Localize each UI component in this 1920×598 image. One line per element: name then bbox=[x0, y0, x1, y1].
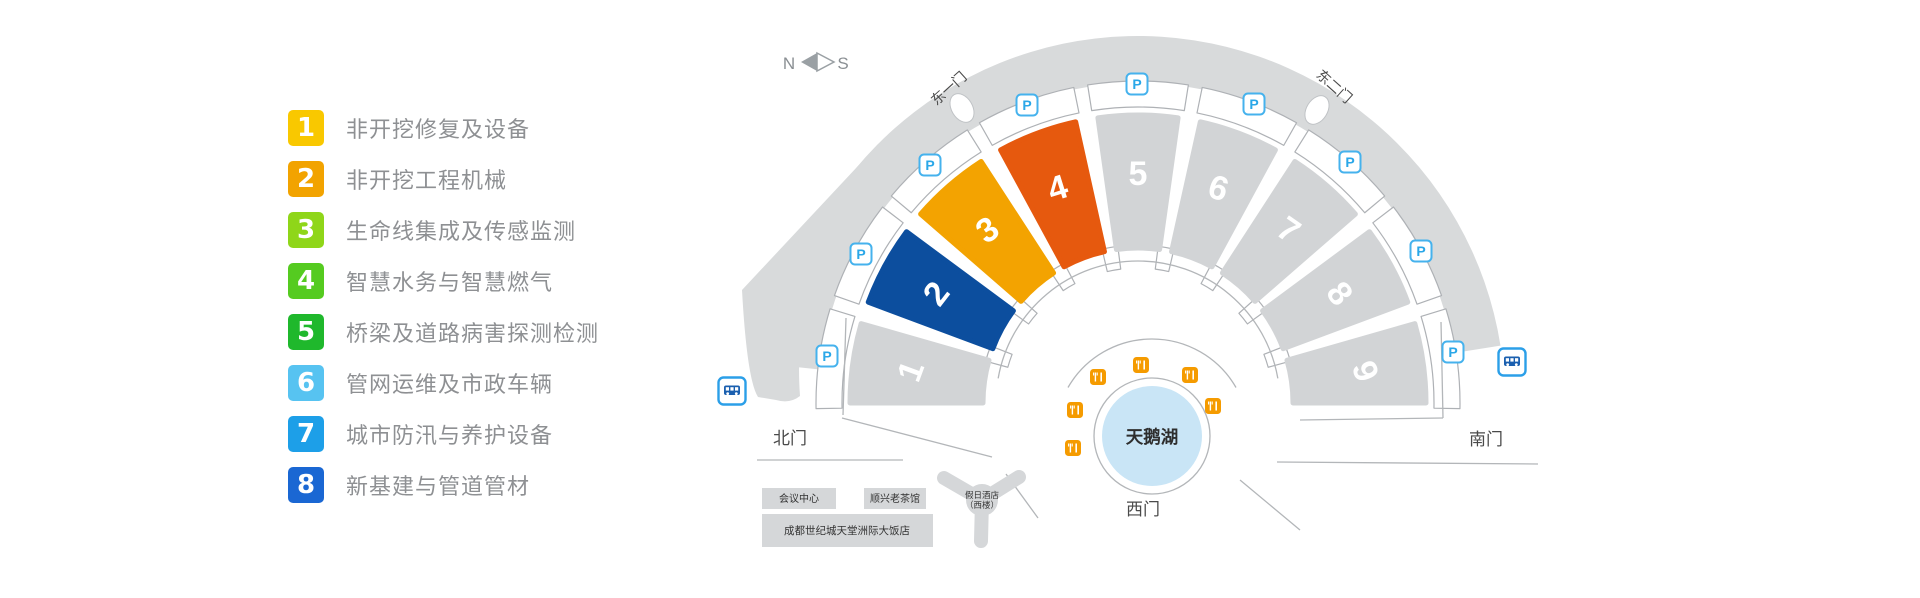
building-labels: 会议中心 顺兴老茶馆 成都世纪城天堂洲际大饭店 假日酒店 （西楼） bbox=[779, 490, 999, 537]
compass-icon bbox=[817, 53, 834, 71]
parking-icon: P bbox=[1127, 74, 1148, 95]
svg-text:P: P bbox=[1249, 96, 1258, 112]
holiday-inn-label: 假日酒店 bbox=[965, 490, 1000, 500]
parking-icon: P bbox=[1411, 241, 1432, 262]
restaurant-icon bbox=[1182, 367, 1198, 383]
teahouse-label: 顺兴老茶馆 bbox=[870, 492, 920, 505]
parking-icon: P bbox=[851, 244, 872, 265]
venue-map: 123456789PPPPPPPPP N S 东一门 东二门 北门 南门 西门 … bbox=[0, 0, 1920, 598]
map-structure: 123456789PPPPPPPPP bbox=[719, 36, 1539, 547]
parking-icon: P bbox=[1244, 94, 1265, 115]
restaurant-icon bbox=[1067, 402, 1083, 418]
road-line bbox=[1300, 418, 1443, 420]
gate-west-label: 西门 bbox=[1126, 500, 1160, 519]
holiday-inn-label2: （西楼） bbox=[965, 500, 999, 510]
compass-north-label: N bbox=[783, 54, 795, 73]
hall-5: 5 bbox=[1098, 115, 1178, 250]
swan-lake-label: 天鹅湖 bbox=[1126, 427, 1179, 447]
conference-center-label: 会议中心 bbox=[779, 492, 819, 505]
svg-text:P: P bbox=[1448, 344, 1457, 360]
road-line bbox=[842, 418, 992, 457]
gate-north-label: 北门 bbox=[773, 429, 807, 448]
parking-icon: P bbox=[1017, 95, 1038, 116]
svg-text:P: P bbox=[1416, 243, 1425, 259]
restaurant-icon bbox=[1205, 398, 1221, 414]
svg-text:P: P bbox=[822, 348, 831, 364]
compass-icon bbox=[801, 53, 817, 71]
compass: N S bbox=[783, 53, 849, 73]
restaurant-icon bbox=[1133, 357, 1149, 373]
parking-icon: P bbox=[817, 346, 838, 367]
bus-icon bbox=[719, 378, 746, 405]
parking-icon: P bbox=[1443, 342, 1464, 363]
bus-icon bbox=[1499, 349, 1526, 376]
restaurant-icon bbox=[1065, 440, 1081, 456]
restaurant-icon bbox=[1090, 369, 1106, 385]
parking-icon: P bbox=[920, 155, 941, 176]
svg-text:P: P bbox=[925, 157, 934, 173]
hall-5-label: 5 bbox=[1129, 155, 1148, 193]
road-line bbox=[1240, 480, 1300, 530]
hotel-label: 成都世纪城天堂洲际大饭店 bbox=[784, 524, 910, 537]
svg-text:P: P bbox=[1022, 97, 1031, 113]
parking-icon: P bbox=[1340, 152, 1361, 173]
gate-south-label: 南门 bbox=[1469, 430, 1503, 449]
svg-text:P: P bbox=[856, 246, 865, 262]
compass-south-label: S bbox=[837, 54, 848, 73]
road-line bbox=[1277, 462, 1538, 464]
exhibition-map-page: 1 非开挖修复及设备 2 非开挖工程机械 3 生命线集成及传感监测 4 智慧水务… bbox=[0, 0, 1920, 598]
svg-text:P: P bbox=[1132, 76, 1141, 92]
svg-text:P: P bbox=[1345, 154, 1354, 170]
